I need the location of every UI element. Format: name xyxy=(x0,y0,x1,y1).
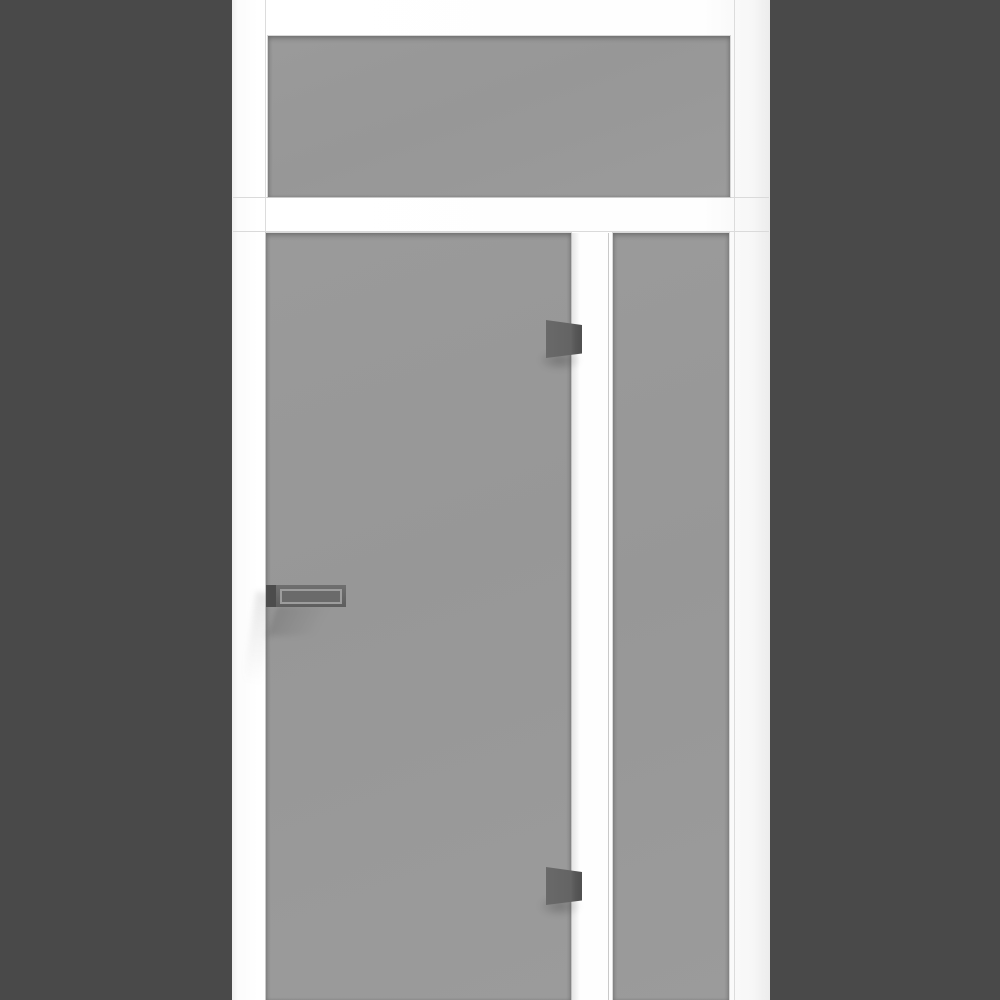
transom-window-glass xyxy=(268,36,730,197)
handle-inset xyxy=(280,589,342,604)
door-render-scene xyxy=(0,0,1000,1000)
frame-casing-line-right xyxy=(734,0,735,1000)
bottom-hinge xyxy=(546,867,582,905)
top-hinge xyxy=(546,320,582,358)
sidelight-frame-line xyxy=(608,233,609,1000)
door-pull-handle xyxy=(266,585,346,607)
handle-shadow xyxy=(267,606,356,636)
transom-rail-line-bottom xyxy=(233,231,769,232)
transom-rail-line-top xyxy=(233,197,769,198)
sidelight-glass-panel xyxy=(613,233,729,1000)
